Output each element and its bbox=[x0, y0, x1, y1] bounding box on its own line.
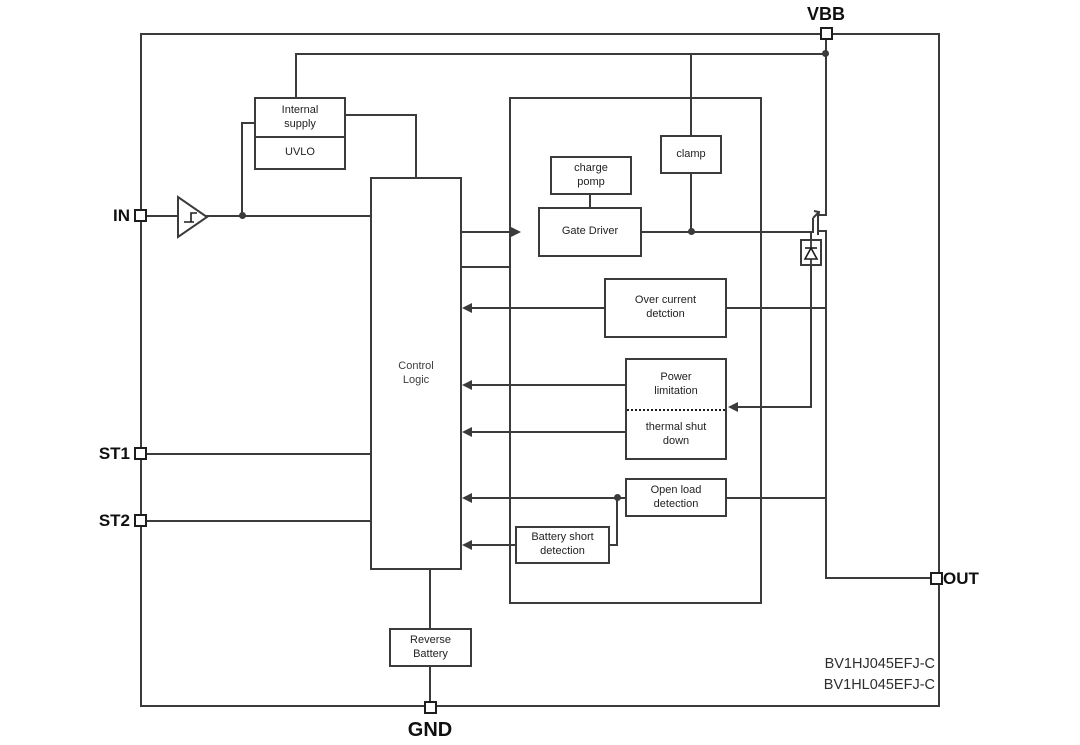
wire bbox=[206, 215, 371, 217]
wire bbox=[241, 122, 243, 217]
block-reverse-battery: Reverse Battery bbox=[389, 628, 472, 667]
arrowhead bbox=[462, 493, 472, 503]
over-current-label: Over current detction bbox=[620, 294, 712, 322]
wire bbox=[825, 39, 827, 205]
wire bbox=[471, 431, 626, 433]
pin-gnd bbox=[424, 701, 437, 714]
wire bbox=[346, 114, 417, 116]
wire bbox=[146, 215, 177, 217]
wire bbox=[415, 114, 417, 177]
block-control-logic: Control Logic bbox=[370, 177, 462, 570]
thermal-shutdown-label: thermal shut down bbox=[645, 421, 707, 449]
pin-label-out: OUT bbox=[943, 569, 979, 589]
block-open-load-detection: Open load detection bbox=[625, 478, 727, 517]
pin-label-st1: ST1 bbox=[86, 444, 130, 464]
block-power-limitation-thermal-shutdown: Power limitation thermal shut down bbox=[625, 358, 727, 460]
internal-supply-label: Internal supply bbox=[271, 104, 329, 132]
wire bbox=[616, 497, 618, 546]
diode-icon bbox=[802, 241, 820, 264]
mosfet-icon bbox=[802, 204, 834, 240]
wire bbox=[690, 173, 692, 233]
wire bbox=[726, 497, 827, 499]
clamp-label: clamp bbox=[676, 148, 705, 162]
wire bbox=[429, 665, 431, 703]
wire bbox=[462, 266, 511, 268]
wire bbox=[825, 577, 932, 579]
pin-vbb bbox=[820, 27, 833, 40]
arrowhead bbox=[462, 303, 472, 313]
arrowhead bbox=[462, 427, 472, 437]
wire bbox=[146, 453, 371, 455]
open-load-label: Open load detection bbox=[643, 484, 709, 512]
wire bbox=[589, 194, 591, 208]
uvlo-label: UVLO bbox=[285, 146, 315, 160]
wire bbox=[471, 307, 605, 309]
wire bbox=[810, 264, 812, 408]
block-diagram: Internal supply UVLO Control Logic charg… bbox=[0, 0, 1080, 745]
pin-st2 bbox=[134, 514, 147, 527]
battery-short-label: Battery short detection bbox=[521, 531, 605, 559]
wire bbox=[690, 53, 692, 135]
wire bbox=[462, 231, 512, 233]
reverse-battery-label: Reverse Battery bbox=[406, 634, 456, 662]
block-internal-supply-uvlo: Internal supply UVLO bbox=[254, 97, 346, 170]
pin-out bbox=[930, 572, 943, 585]
charge-pomp-label: charge pomp bbox=[568, 162, 614, 190]
wire bbox=[610, 544, 618, 546]
arrowhead bbox=[511, 227, 521, 237]
wire bbox=[241, 122, 255, 124]
block-clamp: clamp bbox=[660, 135, 722, 174]
junction-dot bbox=[822, 50, 829, 57]
part-number-line: BV1HJ045EFJ-C bbox=[795, 654, 935, 675]
junction-dot bbox=[239, 212, 246, 219]
part-number-line: BV1HL045EFJ-C bbox=[795, 675, 935, 696]
arrowhead bbox=[728, 402, 738, 412]
wire bbox=[471, 544, 516, 546]
gate-driver-label: Gate Driver bbox=[562, 225, 618, 239]
pin-in bbox=[134, 209, 147, 222]
junction-dot bbox=[688, 228, 695, 235]
block-battery-short-detection: Battery short detection bbox=[515, 526, 610, 564]
pin-st1 bbox=[134, 447, 147, 460]
part-numbers: BV1HJ045EFJ-C BV1HL045EFJ-C bbox=[795, 654, 935, 696]
control-logic-label: Control Logic bbox=[391, 360, 441, 388]
pin-label-vbb: VBB bbox=[798, 4, 854, 25]
wire bbox=[471, 384, 626, 386]
power-limitation-label: Power limitation bbox=[646, 371, 706, 399]
block-over-current-detection: Over current detction bbox=[604, 278, 727, 338]
wire bbox=[429, 568, 431, 629]
pin-label-gnd: GND bbox=[392, 719, 468, 742]
wire bbox=[642, 231, 813, 233]
wire bbox=[146, 520, 371, 522]
wire bbox=[825, 239, 827, 579]
pin-label-st2: ST2 bbox=[86, 511, 130, 531]
arrowhead bbox=[462, 380, 472, 390]
schmitt-buffer-icon bbox=[176, 195, 210, 239]
block-charge-pomp: charge pomp bbox=[550, 156, 632, 195]
wire bbox=[295, 53, 297, 97]
wire bbox=[730, 406, 812, 408]
pin-label-in: IN bbox=[98, 206, 130, 226]
block-gate-driver: Gate Driver bbox=[538, 207, 642, 257]
diode-box bbox=[800, 239, 822, 266]
wire bbox=[296, 53, 827, 55]
arrowhead bbox=[462, 540, 472, 550]
junction-dot bbox=[614, 494, 621, 501]
wire bbox=[471, 497, 626, 499]
